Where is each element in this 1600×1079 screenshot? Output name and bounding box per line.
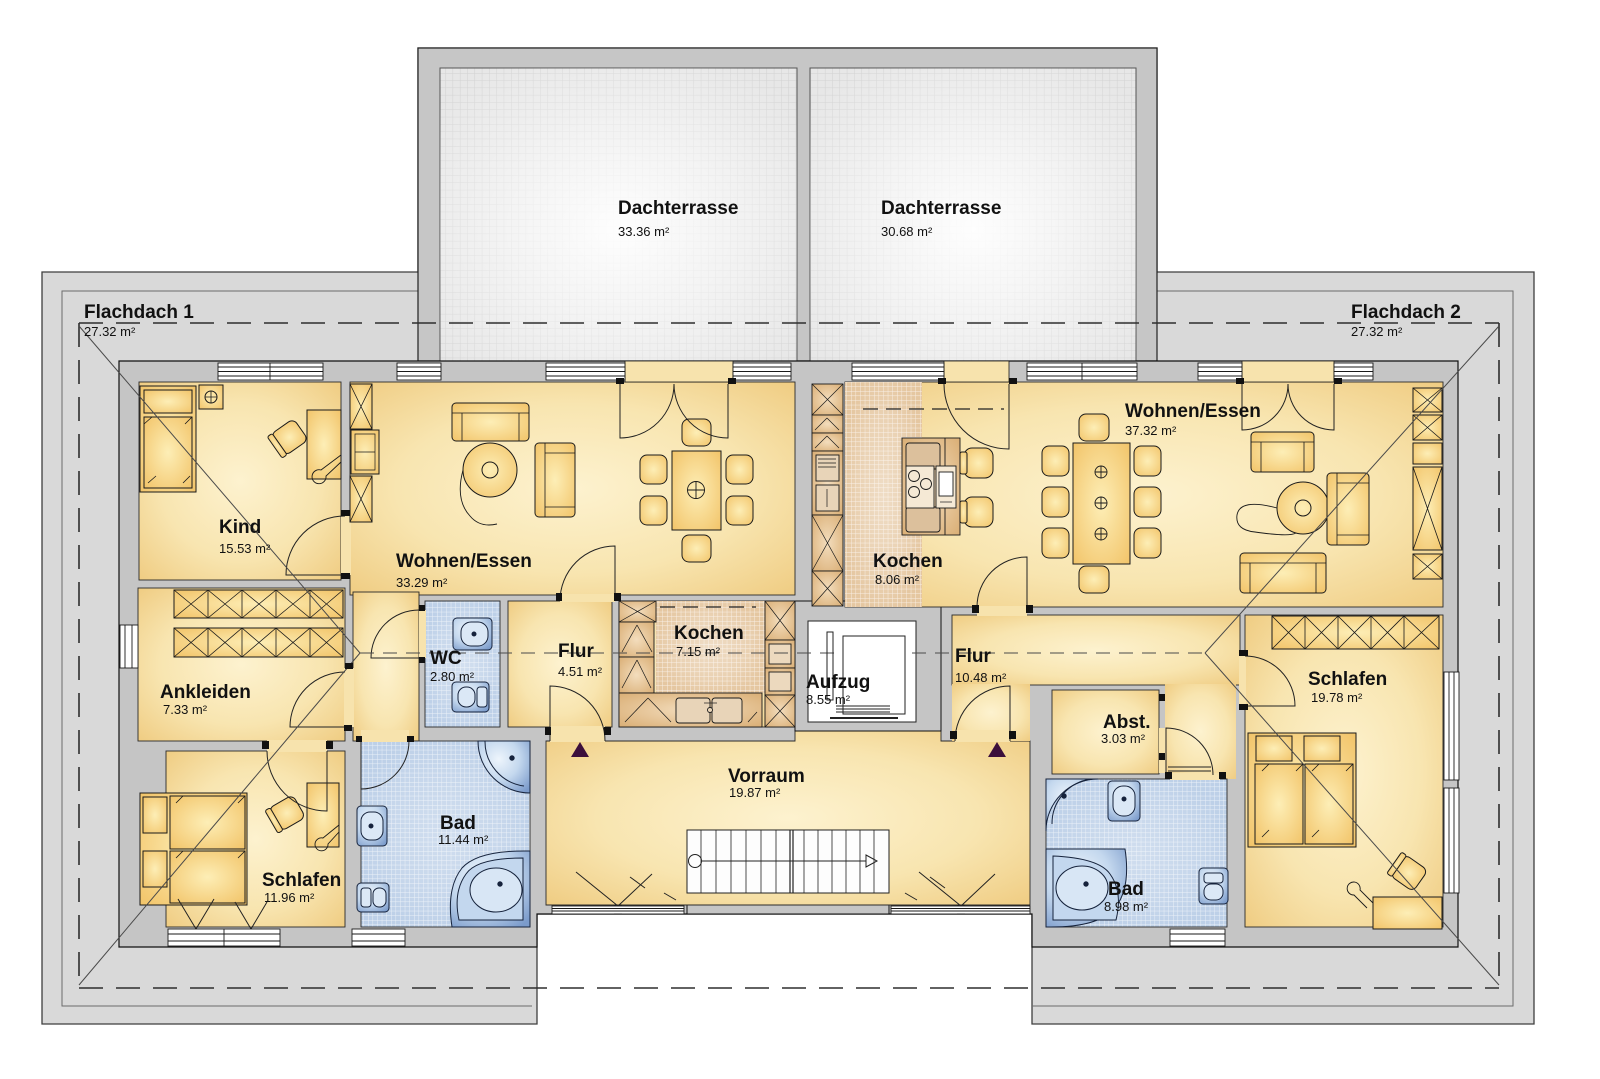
- svg-text:7.33 m²: 7.33 m²: [163, 702, 208, 717]
- svg-text:Flachdach 1: Flachdach 1: [84, 302, 194, 323]
- svg-text:37.32 m²: 37.32 m²: [1125, 423, 1177, 438]
- svg-text:Dachterrasse: Dachterrasse: [618, 198, 738, 219]
- svg-text:33.29 m²: 33.29 m²: [396, 575, 448, 590]
- svg-text:10.48 m²: 10.48 m²: [955, 670, 1007, 685]
- svg-text:8.55 m²: 8.55 m²: [806, 692, 851, 707]
- svg-text:27.32 m²: 27.32 m²: [84, 324, 136, 339]
- svg-text:11.96 m²: 11.96 m²: [264, 890, 315, 905]
- svg-text:8.06 m²: 8.06 m²: [875, 572, 920, 587]
- svg-text:Bad: Bad: [440, 813, 476, 834]
- svg-text:15.53 m²: 15.53 m²: [219, 541, 271, 556]
- svg-text:7.15 m²: 7.15 m²: [676, 644, 721, 659]
- svg-text:33.36 m²: 33.36 m²: [618, 224, 670, 239]
- svg-text:8.98 m²: 8.98 m²: [1104, 899, 1149, 914]
- svg-text:Dachterrasse: Dachterrasse: [881, 198, 1001, 219]
- svg-text:Kind: Kind: [219, 517, 261, 538]
- svg-text:Ankleiden: Ankleiden: [160, 682, 251, 703]
- svg-text:Schlafen: Schlafen: [1308, 669, 1387, 690]
- svg-text:27.32 m²: 27.32 m²: [1351, 324, 1403, 339]
- svg-text:Flur: Flur: [955, 646, 991, 667]
- svg-text:2.80 m²: 2.80 m²: [430, 669, 475, 684]
- svg-text:Schlafen: Schlafen: [262, 870, 341, 891]
- svg-text:Flur: Flur: [558, 641, 594, 662]
- svg-text:Wohnen/Essen: Wohnen/Essen: [396, 551, 532, 572]
- svg-text:WC: WC: [430, 648, 462, 669]
- svg-text:Flachdach 2: Flachdach 2: [1351, 302, 1461, 323]
- svg-text:Kochen: Kochen: [873, 551, 943, 572]
- svg-text:Aufzug: Aufzug: [806, 672, 870, 693]
- svg-text:19.87 m²: 19.87 m²: [729, 785, 781, 800]
- svg-text:Kochen: Kochen: [674, 623, 744, 644]
- svg-text:Vorraum: Vorraum: [728, 766, 805, 787]
- svg-text:Bad: Bad: [1108, 879, 1144, 900]
- svg-text:30.68 m²: 30.68 m²: [881, 224, 933, 239]
- svg-text:4.51 m²: 4.51 m²: [558, 664, 603, 679]
- svg-text:Wohnen/Essen: Wohnen/Essen: [1125, 401, 1261, 422]
- svg-text:Abst.: Abst.: [1103, 712, 1151, 733]
- svg-text:19.78 m²: 19.78 m²: [1311, 690, 1363, 705]
- svg-text:3.03 m²: 3.03 m²: [1101, 731, 1146, 746]
- svg-text:11.44 m²: 11.44 m²: [438, 832, 489, 847]
